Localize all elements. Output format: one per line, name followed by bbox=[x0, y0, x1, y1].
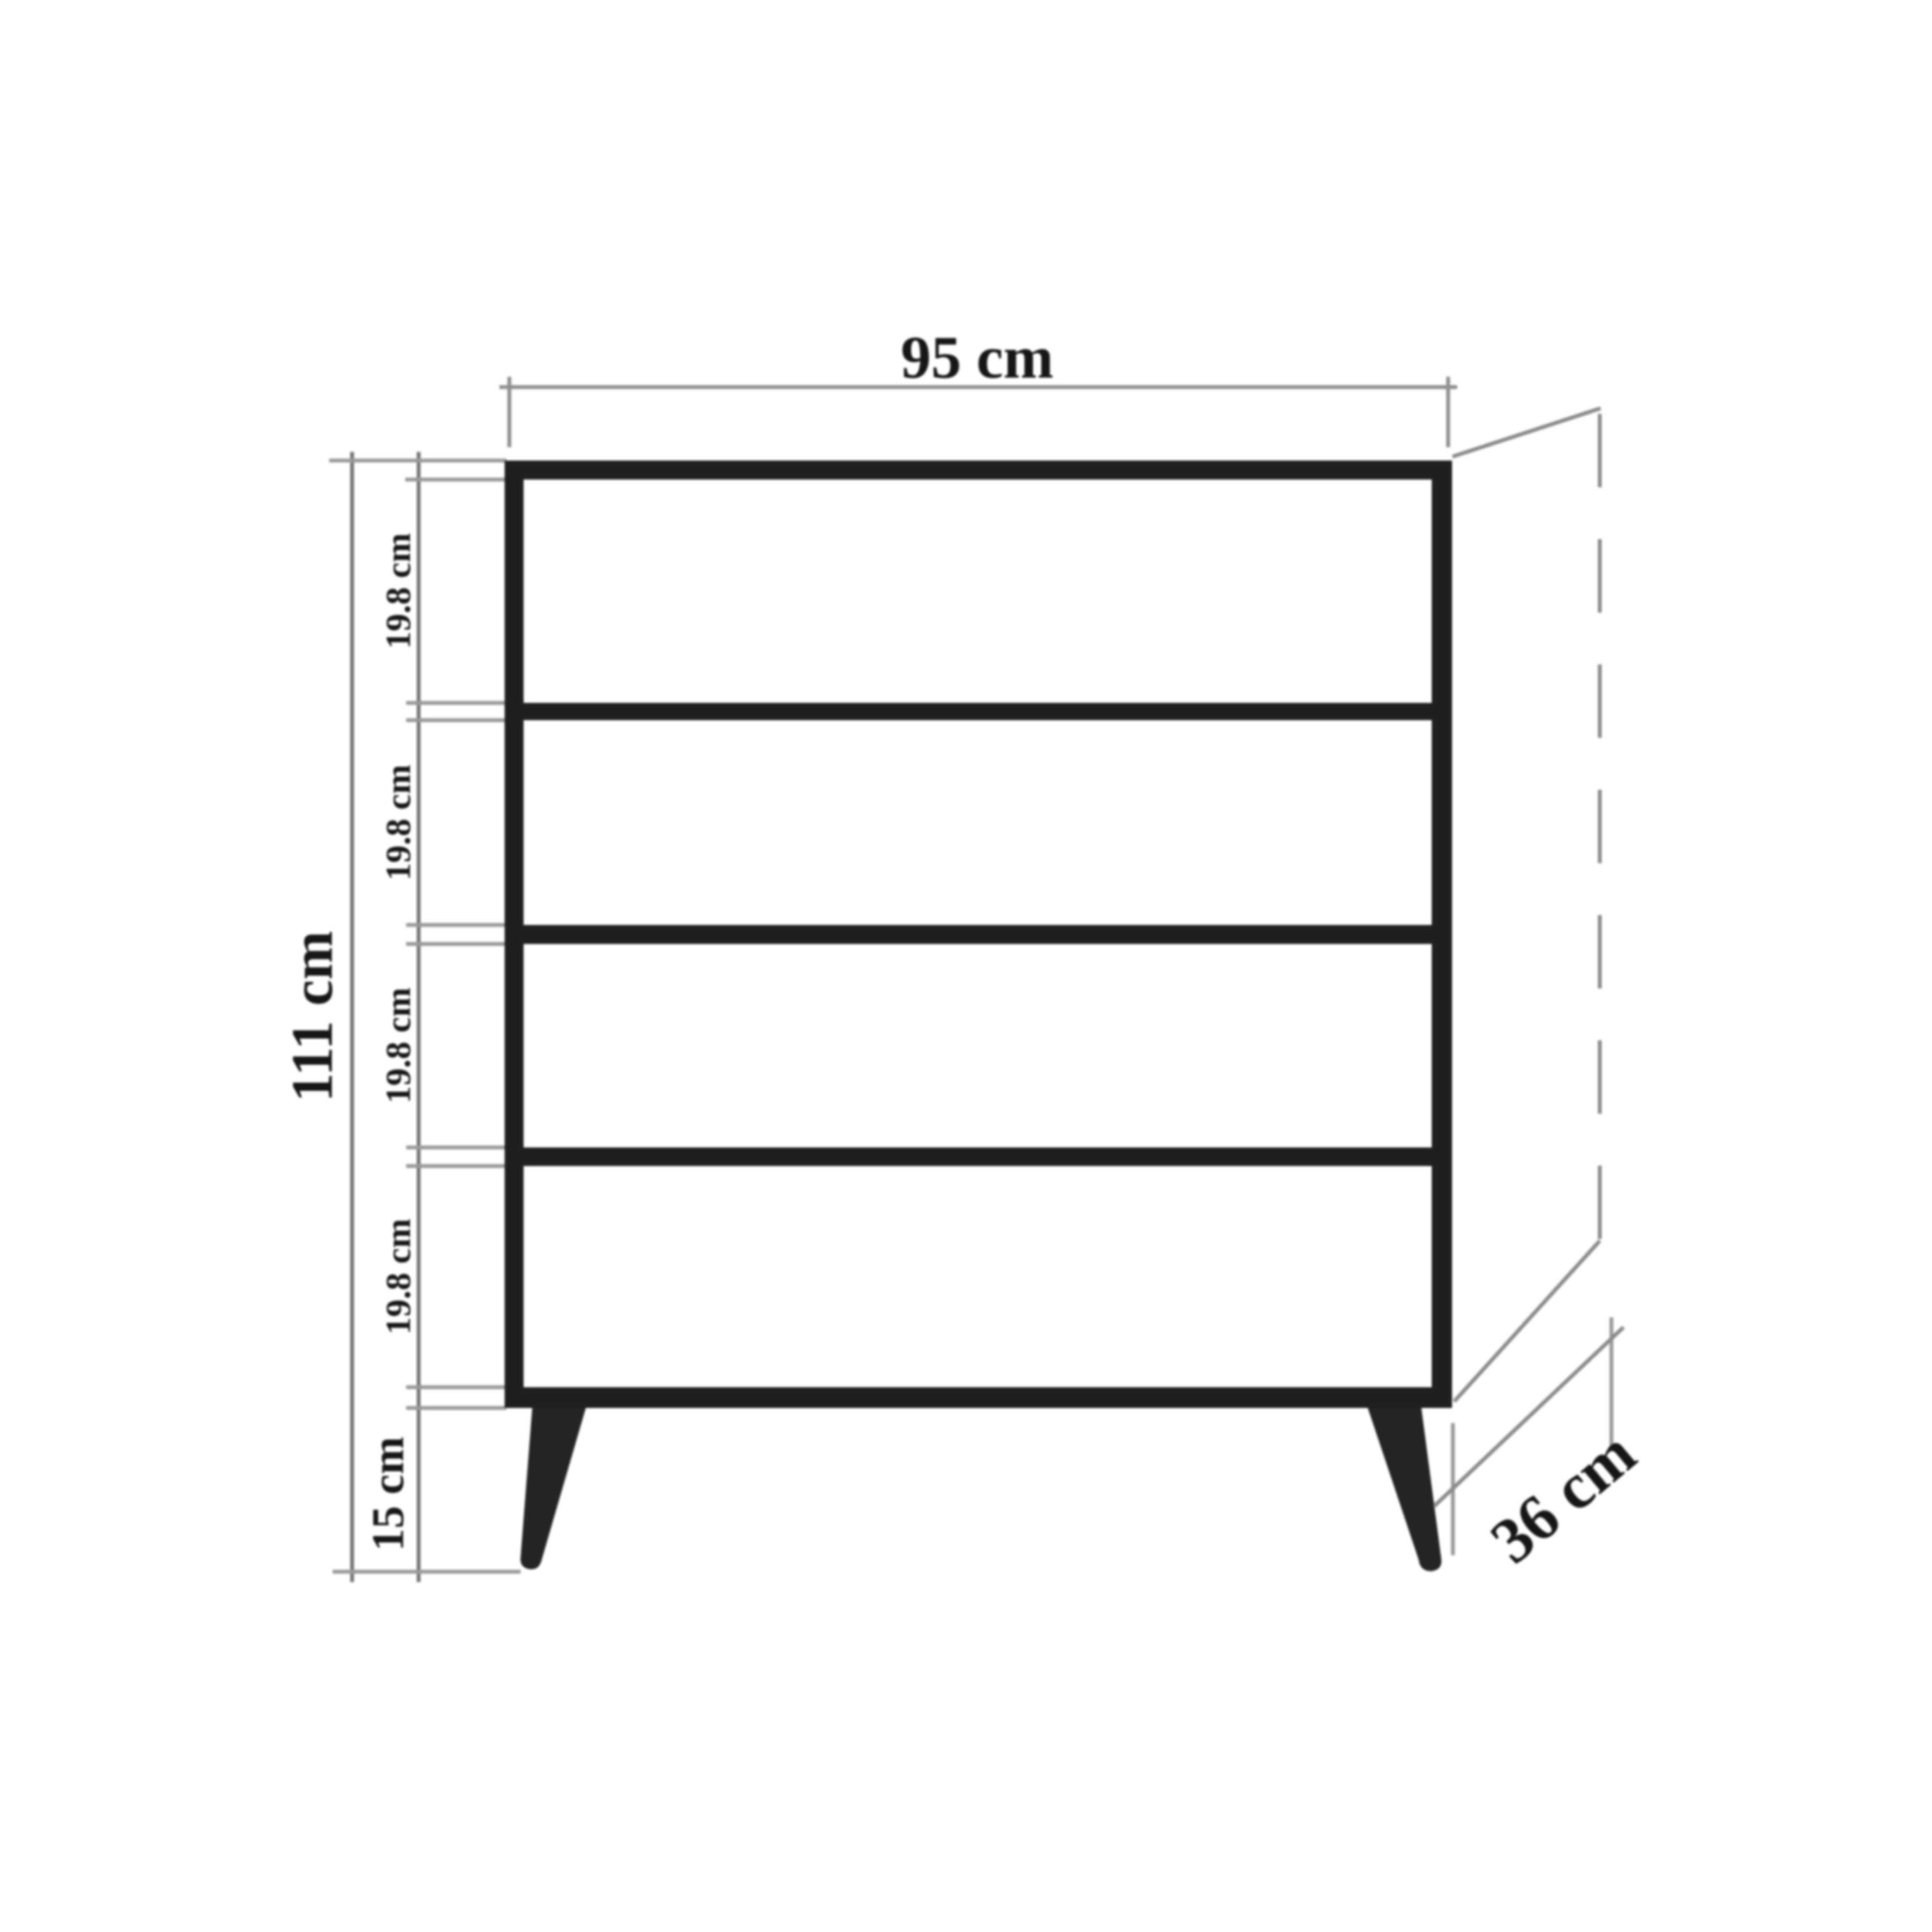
svg-text:19.8 cm: 19.8 cm bbox=[378, 1219, 418, 1335]
svg-text:111 cm: 111 cm bbox=[280, 931, 345, 1103]
svg-text:19.8 cm: 19.8 cm bbox=[378, 988, 418, 1104]
svg-text:95 cm: 95 cm bbox=[901, 324, 1054, 391]
svg-text:19.8 cm: 19.8 cm bbox=[378, 765, 418, 881]
svg-text:19.8 cm: 19.8 cm bbox=[378, 533, 418, 649]
svg-text:15 cm: 15 cm bbox=[362, 1436, 413, 1551]
